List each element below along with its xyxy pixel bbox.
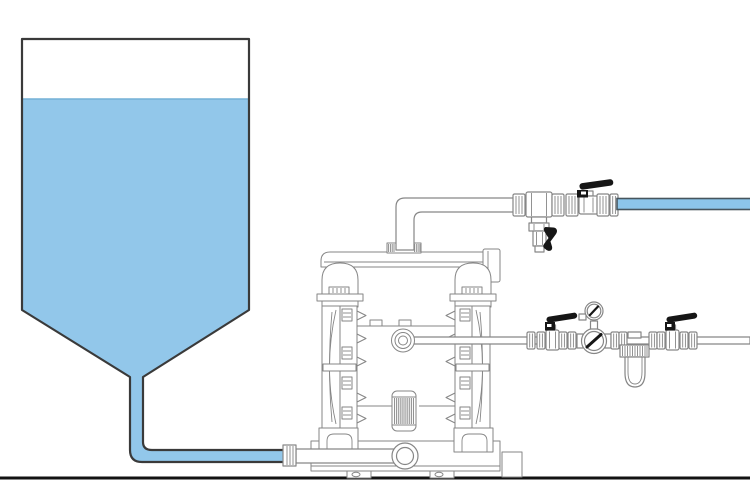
pump-air-dome-left xyxy=(317,263,363,307)
fluid-discharge-line xyxy=(396,179,750,252)
supply-tank xyxy=(22,39,285,462)
pump-chamber-right xyxy=(446,306,493,452)
suction-pipe-union xyxy=(283,445,296,466)
air-regulator xyxy=(577,329,611,354)
drain-valve xyxy=(529,223,557,252)
illustration-canvas xyxy=(0,0,750,504)
pump-air-inlet-fitting xyxy=(392,329,415,352)
discharge-tee xyxy=(526,192,552,223)
air-supply-line xyxy=(392,302,750,387)
diaphragm-pump xyxy=(311,243,522,478)
air-pressure-gauge xyxy=(579,302,603,329)
pump-chamber-left xyxy=(319,306,366,452)
tank-liquid xyxy=(22,99,285,462)
discharge-pipe xyxy=(396,198,515,250)
discharge-hose xyxy=(617,199,750,210)
pump-muffler xyxy=(392,391,416,431)
pump-inlet-elbow xyxy=(392,443,418,469)
pump-system-diagram xyxy=(0,0,750,504)
